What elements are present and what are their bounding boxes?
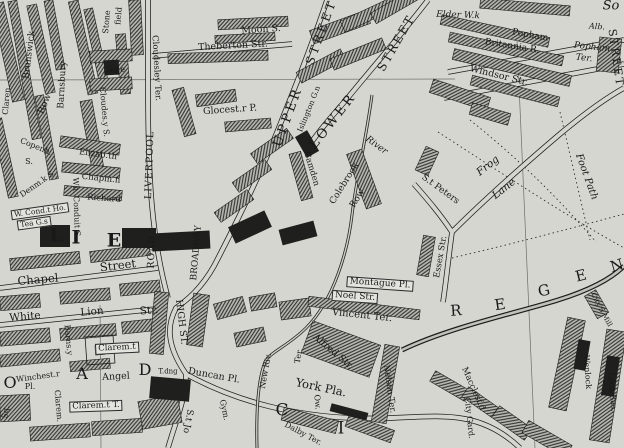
place-label-claremont-3: Clarem. xyxy=(53,390,64,423)
place-label-angel: Angel xyxy=(102,372,130,383)
place-label-ter: Ter. xyxy=(294,348,304,364)
water-label-river: River xyxy=(363,135,388,157)
place-label-square-left: Sq. xyxy=(1,405,11,419)
street-label-barnsbury: Barnsbury xyxy=(57,61,68,109)
street-label-barnsbury-2: Barns.y xyxy=(63,324,74,355)
district-letter-e: E xyxy=(107,232,121,251)
street-label-chapel: Chapel xyxy=(17,272,59,287)
canal-letter-e2: E xyxy=(574,267,588,284)
roadname-letter-d: D xyxy=(139,362,152,378)
roadname-letter-i: I xyxy=(338,421,345,438)
roadname-letter-a: A xyxy=(76,366,88,382)
street-label-alfred: Alfred Str. xyxy=(311,332,355,371)
place-label-albion-fragment: Alb. xyxy=(589,22,606,31)
place-label-claremont-2: Clarem.t T. xyxy=(69,400,123,412)
small-label-tdng: T.dng xyxy=(158,369,177,376)
street-label-owen: Ow. xyxy=(312,394,321,410)
place-label-claremont-1: Clarem.t xyxy=(95,342,139,355)
small-label-gym: Gym. xyxy=(218,399,230,421)
place-label-gloucester: Glocest.r P. xyxy=(203,103,258,116)
placename-fragment-so: So xyxy=(603,0,620,13)
place-label-popham-ter-line2: Ter. xyxy=(575,54,593,65)
street-label-lower-street: STREET xyxy=(375,13,417,73)
roadname-letter-o: O xyxy=(3,375,16,391)
street-label-high-st: HIGH ST. xyxy=(174,299,189,345)
place-label-elder-walk: Elder W.k xyxy=(436,11,480,22)
street-label-denmark: Denm.k S. xyxy=(19,169,58,199)
street-label-liverpool-road: ROAD xyxy=(147,235,158,269)
street-label-stone: Stone xyxy=(102,10,112,34)
street-label-clarence: Claren. xyxy=(2,85,13,115)
street-label-lane: Lane xyxy=(490,177,517,201)
street-label-essex: Essex Str. xyxy=(433,235,449,278)
canal-letter-g: G xyxy=(537,282,552,299)
place-label-nelson-ter: Nelson Ter. xyxy=(381,364,396,413)
street-label-windsor: Windsor Str. xyxy=(469,64,529,88)
canal-letter-n: N xyxy=(609,257,624,275)
place-label-citys-mill: City'S Mill xyxy=(589,292,613,328)
water-label-wenlock: Wenlock xyxy=(582,355,592,390)
place-label-square: Sq.e xyxy=(107,66,125,74)
street-label-richard: Richard xyxy=(87,194,121,205)
street-label-camden: Camden xyxy=(302,151,321,188)
street-label-st-john: S.t Jo xyxy=(180,408,193,433)
street-label-elizabeth: Elizab.th xyxy=(78,148,117,162)
water-label-new-river: New Riv. xyxy=(259,353,273,390)
place-label-duncan-pl: Duncan Pl. xyxy=(187,367,240,385)
street-label-st-peters: S.t Peters xyxy=(420,173,461,206)
street-label-noel: Noel Str. xyxy=(332,290,379,304)
street-label-broadway: BROADWAY xyxy=(190,225,204,281)
place-label-winchester: Winchest.r xyxy=(16,370,61,384)
roadname-letter-c: C xyxy=(275,403,288,420)
map-labels-layer: BrunswickClaren.RowBarnsburyStonefieldSq… xyxy=(0,0,624,448)
place-label-dalby-ter: Dalby Ter. xyxy=(283,421,323,447)
district-letter-l: L xyxy=(49,227,62,246)
street-label-cloudesley-st: Cloudes.y S. xyxy=(98,87,110,137)
place-label-vincent-ter: Vincent Ter. xyxy=(331,308,392,324)
street-label-theberton: Theberton Str. xyxy=(198,39,268,52)
street-label-brunswick: Brunswick xyxy=(23,31,38,80)
street-label-upper-street: STREET xyxy=(304,0,339,66)
map-canvas[interactable]: BrunswickClaren.RowBarnsburyStonefieldSq… xyxy=(0,0,624,448)
canal-letter-e1: E xyxy=(494,297,507,313)
street-label-copenhagen-s: S. xyxy=(25,158,33,166)
street-label-street-right-edge: STREET xyxy=(606,28,624,88)
street-label-lion-str: Str. xyxy=(139,305,158,317)
place-label-winchester-pl: Pl. xyxy=(25,383,35,391)
canal-letter-r: R xyxy=(450,303,462,319)
street-label-white: White xyxy=(9,310,41,323)
place-label-montague: Montague Pl. xyxy=(346,276,414,292)
street-label-cloudesley-ter: Cloudesley Ter. xyxy=(150,35,162,101)
street-label-copenhagen: Copenh. xyxy=(19,137,53,157)
street-label-row: Row xyxy=(37,92,54,115)
district-letter-i: I xyxy=(72,229,81,248)
street-label-field: field xyxy=(114,7,124,25)
street-label-moon: Moon S. xyxy=(241,24,281,36)
street-label-chapman: Chapm.n xyxy=(81,173,120,186)
water-label-lock-basin: Lock Bas. xyxy=(607,372,618,412)
street-label-colebrook-row: Row xyxy=(349,188,367,210)
street-label-liverpool: LIVERPOOL xyxy=(144,131,156,200)
street-label-lion: Lion xyxy=(80,306,104,319)
street-label-chapel-street: Street xyxy=(99,258,136,274)
street-label-frog: Frog xyxy=(475,154,501,178)
path-label-foot-path: Foot Path xyxy=(573,153,599,202)
